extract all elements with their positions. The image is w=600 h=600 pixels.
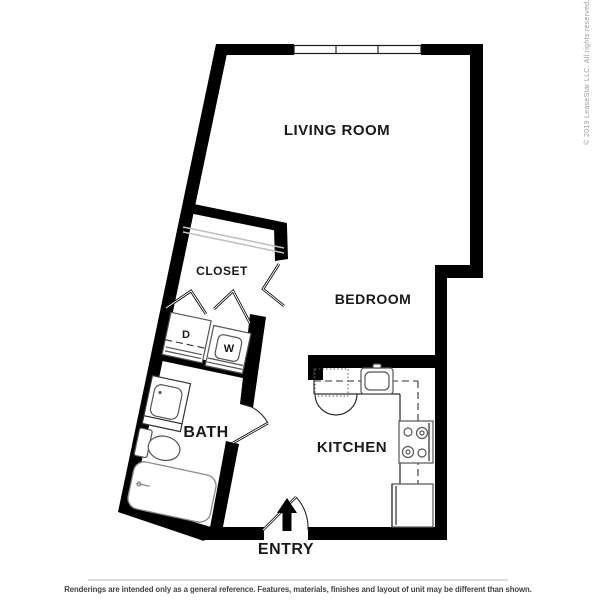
closet-label: CLOSET xyxy=(196,264,248,278)
living-room-label: LIVING ROOM xyxy=(284,122,390,139)
closet-shelf xyxy=(183,227,284,248)
floor-plan-page: D W xyxy=(0,0,600,600)
footer: Renderings are intended only as a genera… xyxy=(64,580,532,594)
closet-shelf xyxy=(183,232,284,253)
wall-closet-top xyxy=(184,202,287,233)
laundry: D W xyxy=(162,312,251,373)
entry-label: ENTRY xyxy=(258,541,314,558)
kitchen-sink xyxy=(361,364,393,394)
dryer-label: D xyxy=(182,329,190,341)
counter-round-end xyxy=(315,394,357,415)
refrigerator xyxy=(392,484,433,527)
wall-right-upper xyxy=(470,44,483,278)
floor-plan-image: D W xyxy=(0,0,600,600)
window xyxy=(294,46,421,54)
walls xyxy=(118,44,483,541)
kitchen-label: KITCHEN xyxy=(317,439,387,456)
wall-closet-jamb xyxy=(274,226,288,261)
copyright-watermark: © 2019 LeaseStar LLC. All rights reserve… xyxy=(583,0,591,145)
wall-kitchen-stub xyxy=(308,355,323,380)
bath-door xyxy=(233,404,268,443)
bath-label: BATH xyxy=(183,424,228,441)
doors xyxy=(233,404,308,531)
stove xyxy=(399,421,433,463)
disclaimer-text: Renderings are intended only as a genera… xyxy=(64,585,532,594)
washer-label: W xyxy=(224,343,235,355)
bathroom-fixtures xyxy=(126,376,218,525)
bedroom-label: BEDROOM xyxy=(335,291,412,307)
wall-bottom-right xyxy=(308,527,447,540)
window-frame xyxy=(294,46,421,54)
wall-right-lower xyxy=(435,265,447,540)
